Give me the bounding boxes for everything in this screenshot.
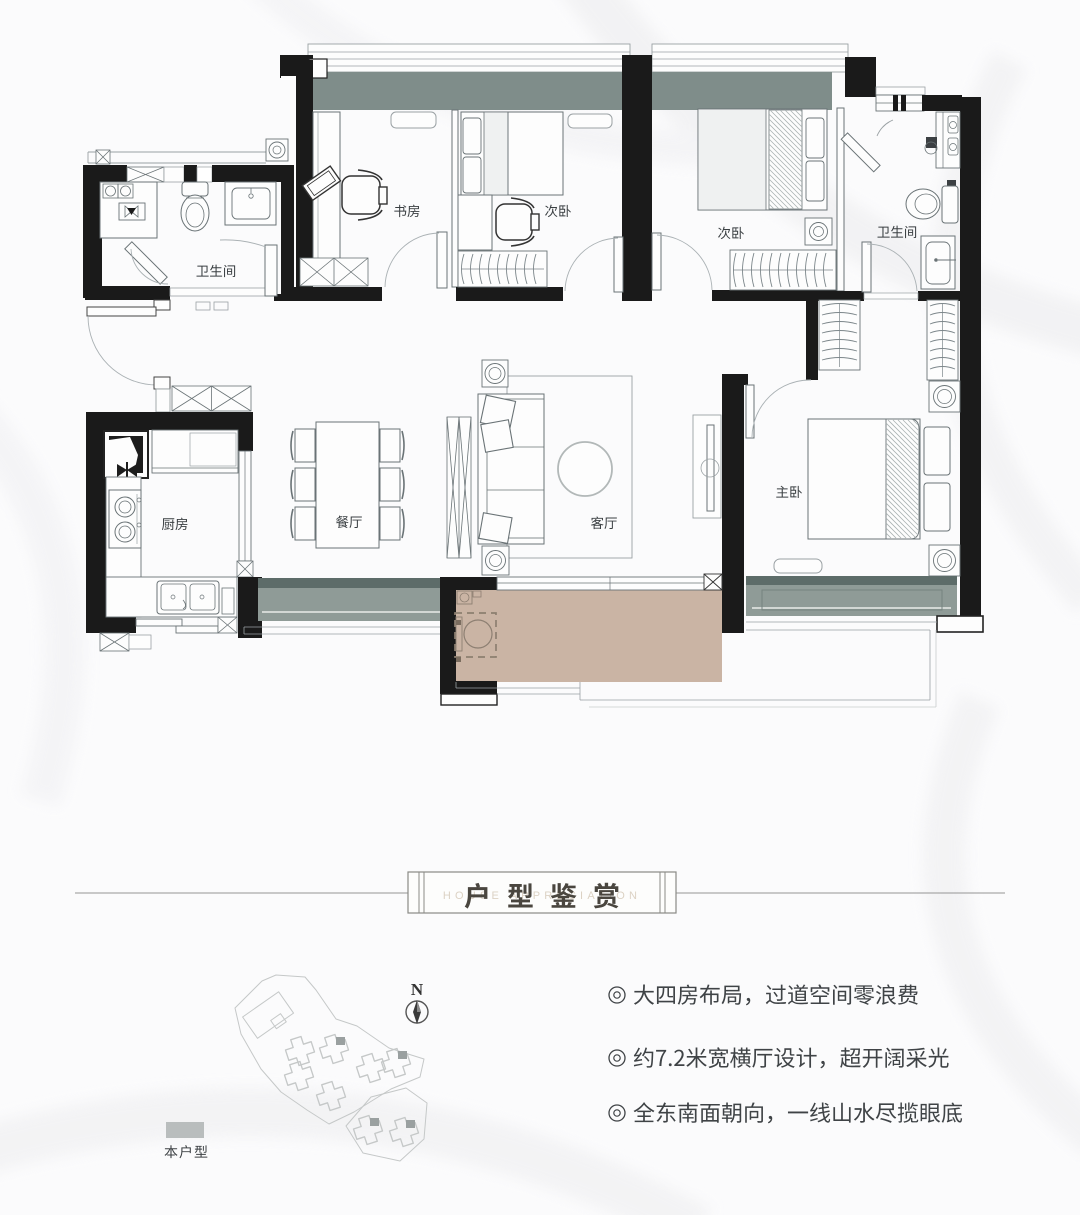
svg-text:N: N xyxy=(411,980,424,999)
